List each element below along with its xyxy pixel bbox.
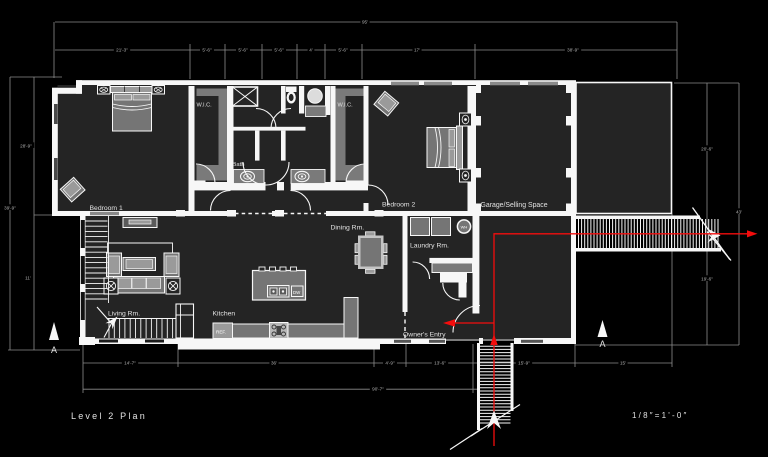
svg-text:A: A [599,339,605,349]
svg-text:4': 4' [309,47,313,52]
svg-text:Bedroom 1: Bedroom 1 [90,205,123,212]
svg-text:Kitchen: Kitchen [213,311,236,318]
svg-text:39'-9″: 39'-9″ [4,205,16,210]
svg-text:Dining Rm.: Dining Rm. [331,225,365,232]
svg-text:36': 36' [271,360,277,365]
svg-text:21'-3″: 21'-3″ [116,47,128,52]
svg-text:38'-9″: 38'-9″ [567,47,579,52]
svg-text:28'-9″: 28'-9″ [20,143,32,148]
svg-text:WH: WH [461,224,468,229]
svg-text:W.I.C.: W.I.C. [338,103,354,109]
svg-text:17': 17' [414,47,420,52]
svg-text:Garage/Selling Space: Garage/Selling Space [481,202,548,209]
svg-text:Owner's Entry: Owner's Entry [403,332,446,339]
svg-text:Bedroom 2: Bedroom 2 [382,202,415,209]
svg-text:DW: DW [293,290,301,295]
svg-text:1/8″=1'-0″: 1/8″=1'-0″ [632,411,689,420]
svg-text:Level 2 Plan: Level 2 Plan [71,411,147,421]
svg-text:19'-6″: 19'-6″ [701,276,713,281]
svg-text:5'-6″: 5'-6″ [338,47,348,52]
svg-text:W.I.C.: W.I.C. [197,103,213,109]
svg-text:15': 15' [620,360,626,365]
svg-text:11': 11' [25,275,31,280]
svg-text:REF.: REF. [216,330,226,335]
svg-text:Laundry Rm.: Laundry Rm. [410,243,449,250]
svg-text:43': 43' [736,209,742,214]
svg-text:13'-6″: 13'-6″ [434,360,446,365]
svg-text:15'-9″: 15'-9″ [518,360,530,365]
svg-text:5'-6″: 5'-6″ [274,47,284,52]
svg-text:14'-7″: 14'-7″ [124,360,136,365]
svg-text:90'-7″: 90'-7″ [372,386,384,391]
svg-text:A: A [51,345,57,355]
svg-text:20'-6″: 20'-6″ [701,146,713,151]
svg-text:Living Rm.: Living Rm. [108,311,140,318]
svg-text:5'-6″: 5'-6″ [238,47,248,52]
svg-text:95': 95' [362,19,368,24]
svg-text:5'-6″: 5'-6″ [202,47,212,52]
svg-text:4'-9″: 4'-9″ [385,360,395,365]
